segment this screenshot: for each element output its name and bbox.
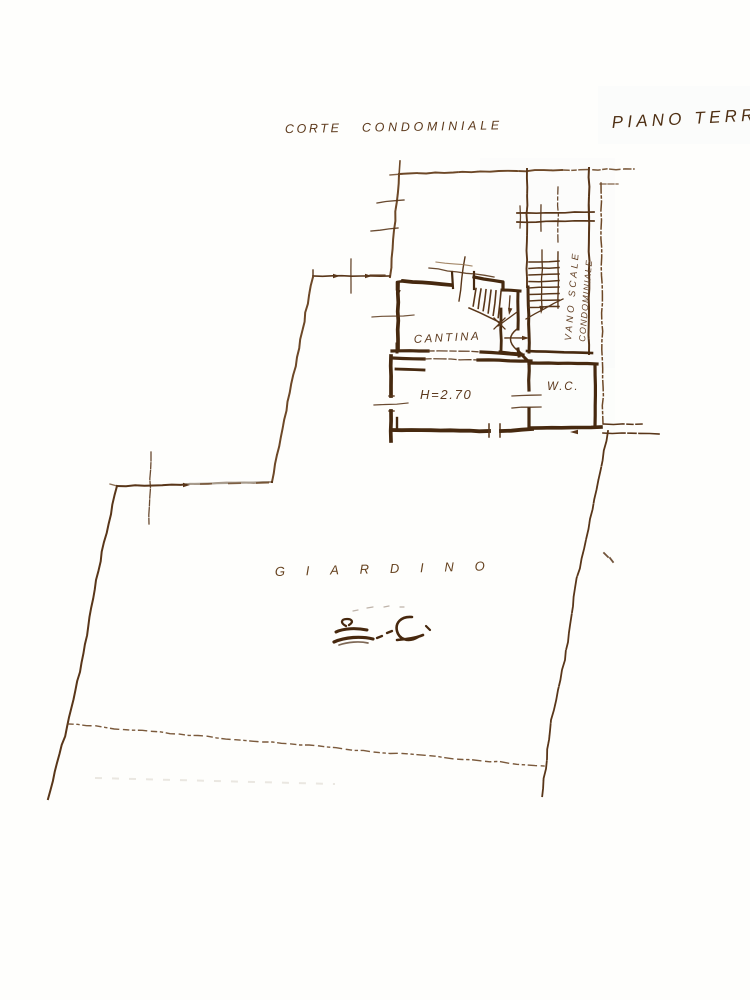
svg-text:H=2.70: H=2.70 [420,387,472,402]
svg-text:W.C.: W.C. [547,381,579,393]
svg-text:CORTE: CORTE [285,121,342,136]
svg-text:CONDOMINIALE: CONDOMINIALE [362,118,503,134]
